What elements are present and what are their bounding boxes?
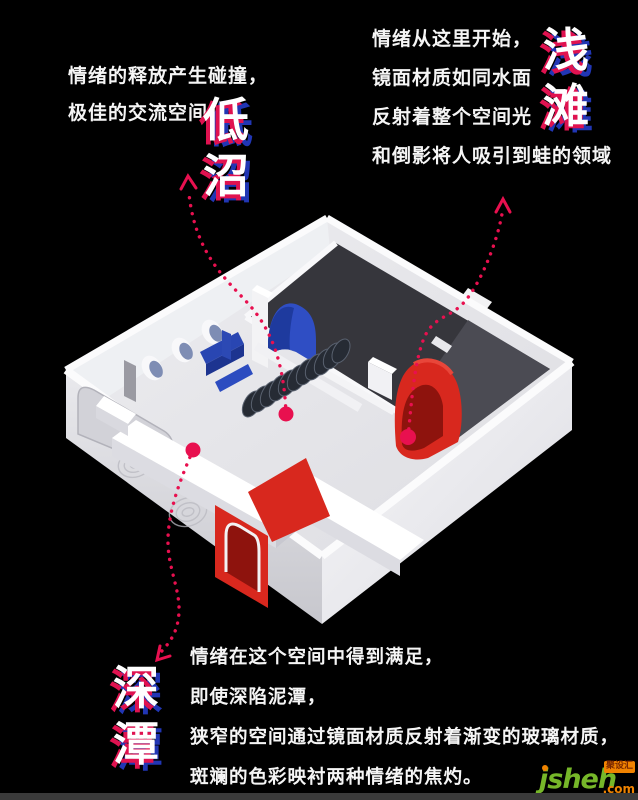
annotation-line: 即使深陷泥潭， [190,678,619,718]
watermark-badge: 聚设汇 [604,761,635,773]
dot-right-space [400,429,416,445]
label-shallow-beach: 浅滩 [543,22,595,134]
dot-left-bench [186,443,201,458]
annotation-line: 和倒影将人吸引到蛙的领域 [372,137,612,176]
dot-center-space [279,407,294,422]
annotation-line: 情绪在这个空间中得到满足， [190,638,619,678]
arrowhead-low-marsh [181,176,196,189]
poster-canvas: 情绪的释放产生碰撞， 极佳的交流空间 低沼 情绪从这里开始， 镜面材质如同水面 … [0,0,638,800]
arrowhead-shallow [496,199,510,212]
red-tunnel [395,360,462,460]
label-low-marsh: 低沼 [203,92,255,204]
watermark-j-dot-icon [542,765,548,771]
watermark-logo: jsheh 聚设汇 .com [539,759,635,795]
annotation-line: 狭窄的空间通过镜面材质反射着渐变的玻璃材质， [190,718,619,758]
gray-pillar [124,360,136,402]
arrowhead-deep-pool [157,646,170,660]
label-deep-pool: 深潭 [113,660,165,772]
annotation-line: 情绪的释放产生碰撞， [68,58,268,95]
blue-strip [222,330,231,360]
bottom-border [0,793,638,800]
